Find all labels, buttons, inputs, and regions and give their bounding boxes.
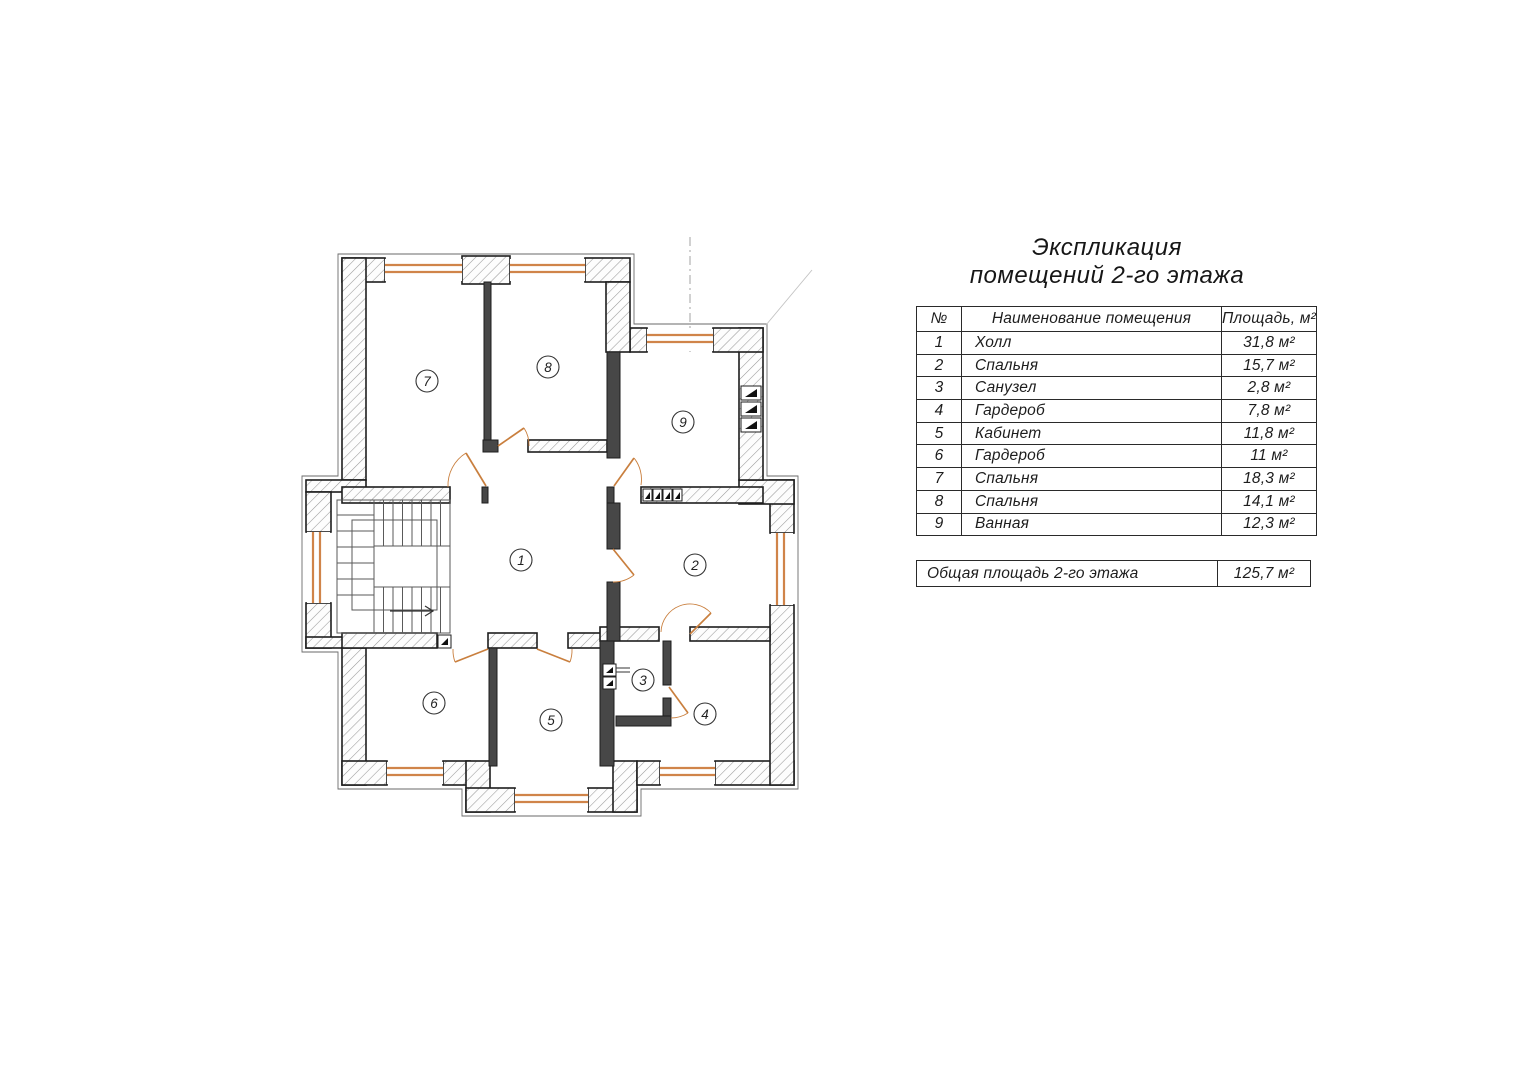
svg-text:2: 2 — [690, 558, 699, 573]
row-area: 11,8 м² — [1222, 422, 1317, 445]
table-row: 7 Спальня 18,3 м² — [917, 468, 1317, 491]
total-area: 125,7 м² — [1218, 561, 1311, 587]
row-area: 2,8 м² — [1222, 377, 1317, 400]
table-row: 6 Гардероб 11 м² — [917, 445, 1317, 468]
total-label: Общая площадь 2-го этажа — [917, 561, 1218, 587]
door-swing — [448, 453, 486, 487]
room-label-5: 5 — [540, 709, 562, 731]
window — [771, 533, 793, 605]
row-area: 15,7 м² — [1222, 354, 1317, 377]
vent-shaft — [643, 489, 682, 501]
door-swing — [498, 428, 529, 446]
window — [387, 762, 443, 784]
svg-text:7: 7 — [423, 374, 431, 389]
vent-shaft — [438, 635, 451, 648]
room-label-8: 8 — [537, 356, 559, 378]
window — [647, 329, 713, 351]
svg-text:6: 6 — [430, 696, 438, 711]
room-label-7: 7 — [416, 370, 438, 392]
row-num: 1 — [917, 332, 962, 355]
leader-line — [766, 270, 812, 325]
row-name: Холл — [962, 332, 1222, 355]
vent-shaft — [741, 386, 761, 432]
staircase — [337, 500, 450, 633]
row-num: 9 — [917, 513, 962, 536]
page: { "title": {"line1": "Экспликация", "lin… — [0, 0, 1527, 1080]
row-name: Спальня — [962, 354, 1222, 377]
door-swing — [614, 458, 641, 486]
svg-text:9: 9 — [679, 415, 687, 430]
row-area: 18,3 м² — [1222, 468, 1317, 491]
svg-text:8: 8 — [544, 360, 552, 375]
row-name: Гардероб — [962, 400, 1222, 423]
window — [385, 259, 462, 281]
row-name: Спальня — [962, 490, 1222, 513]
table-row: 5 Кабинет 11,8 м² — [917, 422, 1317, 445]
window — [510, 259, 585, 281]
room-label-9: 9 — [672, 411, 694, 433]
svg-text:4: 4 — [701, 707, 709, 722]
row-name: Спальня — [962, 468, 1222, 491]
svg-text:1: 1 — [517, 553, 525, 568]
table-row: 8 Спальня 14,1 м² — [917, 490, 1317, 513]
row-name: Гардероб — [962, 445, 1222, 468]
svg-text:3: 3 — [639, 673, 647, 688]
door-swing — [453, 649, 488, 662]
row-num: 6 — [917, 445, 962, 468]
row-num: 3 — [917, 377, 962, 400]
row-num: 7 — [917, 468, 962, 491]
vent-shaft — [603, 664, 630, 689]
room-label-2: 2 — [684, 554, 706, 576]
row-num: 8 — [917, 490, 962, 513]
door-swing — [669, 687, 688, 718]
row-area: 14,1 м² — [1222, 490, 1317, 513]
room-label-4: 4 — [694, 703, 716, 725]
row-area: 11 м² — [1222, 445, 1317, 468]
table-row: 4 Гардероб 7,8 м² — [917, 400, 1317, 423]
row-num: 5 — [917, 422, 962, 445]
row-area: 31,8 м² — [1222, 332, 1317, 355]
door-swing — [537, 649, 572, 662]
header-area: Площадь, м² — [1222, 307, 1317, 332]
door-swings — [448, 428, 711, 718]
explication-table: № Наименование помещения Площадь, м² 1 Х… — [916, 306, 1317, 536]
row-name: Санузел — [962, 377, 1222, 400]
table-header-row: № Наименование помещения Площадь, м² — [917, 307, 1317, 332]
door-swing — [613, 549, 634, 582]
table-row: 2 Спальня 15,7 м² — [917, 354, 1317, 377]
window — [660, 762, 715, 784]
row-num: 2 — [917, 354, 962, 377]
room-label-6: 6 — [423, 692, 445, 714]
interior-partitions — [482, 282, 671, 766]
row-area: 7,8 м² — [1222, 400, 1317, 423]
explication-title: Экспликация помещений 2-го этажа — [942, 234, 1272, 289]
table-row: 9 Ванная 12,3 м² — [917, 513, 1317, 536]
header-name: Наименование помещения — [962, 307, 1222, 332]
title-line-2: помещений 2-го этажа — [942, 262, 1272, 290]
title-line-1: Экспликация — [942, 234, 1272, 262]
floor-plan: 1 2 3 4 5 6 7 8 9 — [0, 0, 1527, 1080]
room-label-1: 1 — [510, 549, 532, 571]
window — [307, 532, 330, 603]
row-area: 12,3 м² — [1222, 513, 1317, 536]
window — [515, 789, 588, 811]
row-name: Кабинет — [962, 422, 1222, 445]
row-name: Ванная — [962, 513, 1222, 536]
table-row: 3 Санузел 2,8 м² — [917, 377, 1317, 400]
total-area-row: Общая площадь 2-го этажа 125,7 м² — [916, 560, 1311, 587]
svg-text:5: 5 — [547, 713, 555, 728]
room-label-3: 3 — [632, 669, 654, 691]
row-num: 4 — [917, 400, 962, 423]
header-num: № — [917, 307, 962, 332]
table-row: 1 Холл 31,8 м² — [917, 332, 1317, 355]
